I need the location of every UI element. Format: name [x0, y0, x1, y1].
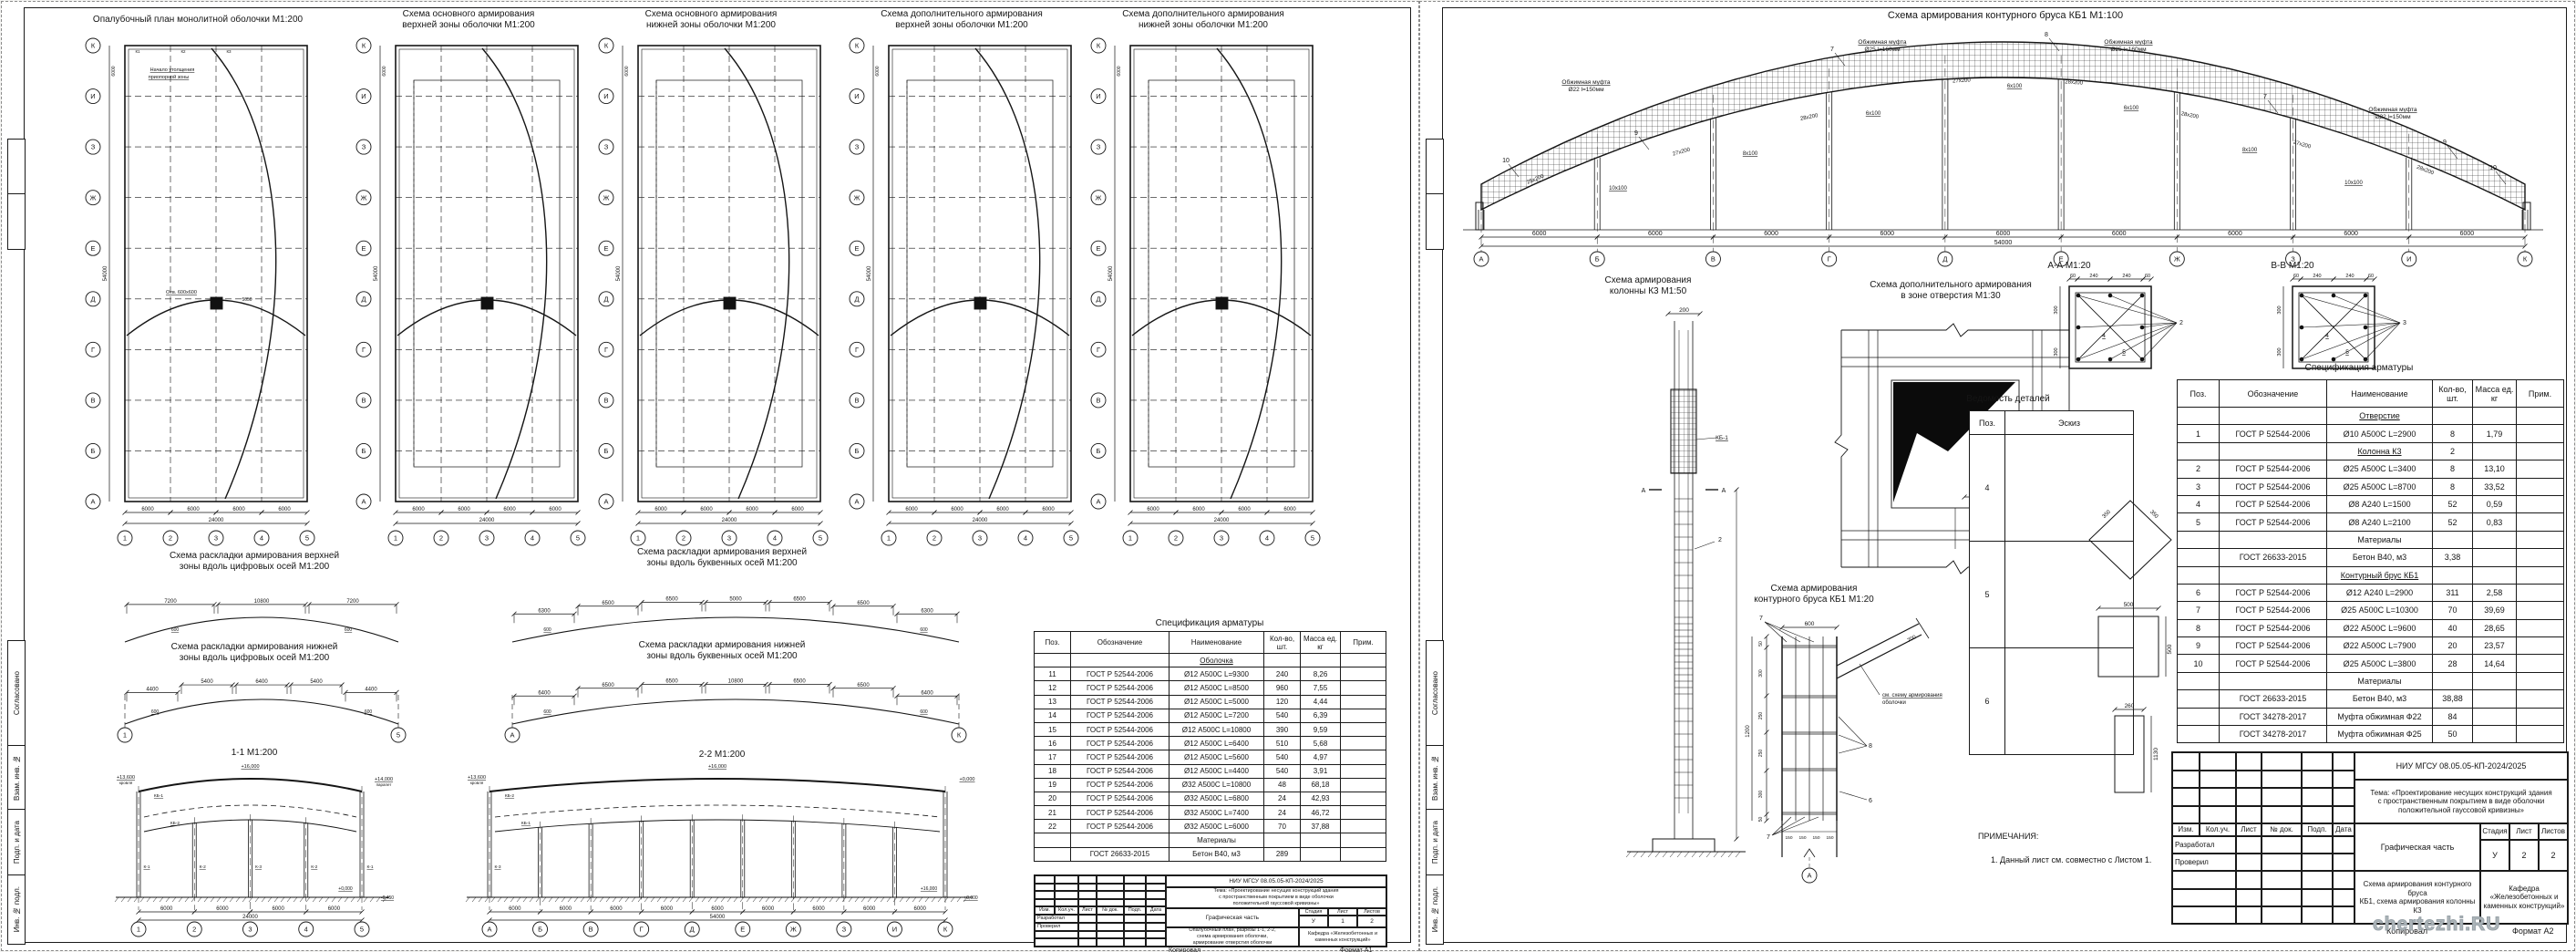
titleblock-cell [2236, 788, 2262, 806]
titleblock-cell [2333, 806, 2354, 824]
spec-header-row: Поз.ОбозначениеНаименованиеКол-во, шт.Ма… [2178, 380, 2564, 408]
position-callout: 10 [1502, 158, 1510, 164]
dim-label: 24000 [1214, 518, 1230, 523]
mufta-label: Обжимная муфта [1858, 38, 1907, 46]
dim-label: 6000 [1996, 231, 2011, 237]
spec-cell: 23,57 [2473, 637, 2517, 655]
axis-label: 5 [1311, 534, 1314, 543]
titleblock-theme: Тема: «Проектирование несущих конструкци… [1166, 887, 1386, 908]
axis-label: Ж [90, 193, 97, 202]
dim-label: 6500 [665, 679, 678, 685]
axis-label: 4 [260, 534, 263, 543]
spec-cell: 11 [1035, 667, 1071, 681]
axis-label: 5 [397, 731, 400, 740]
axis-label: И [2406, 255, 2411, 264]
titleblock-cell [1146, 923, 1166, 931]
position-callout: 2 [1718, 537, 1722, 543]
titleblock-stage-label: Стадия [2480, 823, 2509, 840]
spec-row: ГОСТ 26633-2015Бетон В40, м33,38 [2178, 549, 2564, 566]
titleblock-cell [1078, 891, 1097, 899]
titleblock-stage-label: Стадия [1299, 908, 1328, 916]
dim-label: 600 [920, 709, 928, 715]
axis-label: Г [91, 346, 95, 354]
spec-cell [2473, 672, 2517, 689]
spec-cell: ГОСТ 26633-2015 [2220, 690, 2327, 708]
dim-label: 6000 [2460, 231, 2475, 237]
spec-cell: 18 [1035, 764, 1071, 778]
axis-label: В [361, 396, 366, 404]
spec-cell [1071, 833, 1170, 847]
spec-cell [2517, 708, 2564, 725]
dim-label: 250 [1758, 712, 1764, 720]
dim-label: 24000 [479, 518, 495, 523]
spec-cell [2517, 408, 2564, 425]
side-stamp-box: Подп. и дата [1426, 809, 1444, 876]
dim-label: 6000 [1147, 507, 1159, 512]
dim-label: 150 [1812, 835, 1819, 841]
dim-label: 54000 [1994, 240, 2013, 246]
axis-label: И [1096, 92, 1100, 100]
titleblock-cell [2262, 788, 2302, 806]
titleblock-dept: Кафедра «Железобетонных и каменных конст… [1299, 927, 1386, 947]
spec-row: Материалы [2178, 672, 2564, 689]
spec-cell: ГОСТ Р 52544-2006 [2220, 425, 2327, 442]
titleblock-sheets: 2 [2539, 840, 2568, 871]
axis-label: Б [855, 447, 860, 455]
axis-label: Е [90, 244, 95, 253]
side-stamp-label: Подп. и дата [13, 821, 21, 864]
spec-cell [2473, 531, 2517, 548]
spec-cell [1341, 778, 1386, 792]
dim-label: 6300 [538, 608, 551, 614]
dim-label: 6500 [793, 597, 806, 603]
dim-label: 5400 [310, 679, 323, 685]
dim-label: 54000 [1108, 265, 1114, 281]
titleblock-cell [1097, 884, 1124, 892]
titleblock-cell [2333, 788, 2354, 806]
spec-table: Поз.ОбозначениеНаименованиеКол-во, шт.Ма… [2177, 379, 2564, 743]
dim-label: 6000 [1283, 507, 1296, 512]
axis-label: Ж [790, 926, 797, 934]
spec-cell: ГОСТ Р 52544-2006 [1071, 681, 1170, 695]
titleblock-col-label: Кол.уч. [1055, 906, 1078, 915]
dim-label: 6000 [141, 507, 154, 512]
plan-drawing: Отв. 600х6005050Начало утолщенияприопорн… [75, 35, 321, 559]
spec-cell [2178, 408, 2220, 425]
spec-header-cell: Прим. [2517, 380, 2564, 408]
spec-cell: ГОСТ Р 52544-2006 [1071, 806, 1170, 820]
axis-label: Д [1942, 255, 1947, 264]
spec-cell: 540 [1264, 764, 1301, 778]
dim-label: 6500 [793, 679, 806, 685]
member-tag: К-3 [494, 864, 500, 870]
spec-cell: 2,58 [2473, 584, 2517, 601]
spec-cell [1035, 654, 1071, 667]
dim-label: 5000 [729, 597, 742, 603]
spec-cell [2473, 708, 2517, 725]
spec-cell [2517, 566, 2564, 584]
dim-label: 600 [365, 709, 373, 715]
side-stamp-label: Взам. инв. № [13, 755, 21, 801]
column-tag: К1 [135, 49, 140, 54]
axis-label: Б [1595, 255, 1600, 264]
titleblock-cell [1035, 899, 1055, 907]
axis-label: Г [1097, 346, 1100, 354]
spec-table: Поз.ОбозначениеНаименованиеКол-во, шт.Ма… [1034, 631, 1386, 862]
titleblock-doc: Графическая часть [1166, 908, 1299, 927]
titleblock-cell [1124, 899, 1146, 907]
axis-label: 5 [576, 534, 580, 543]
spec-cell: Ø12 А500С L=7200 [1170, 709, 1264, 722]
side-stamp-label: Инв. № подл. [1431, 886, 1439, 932]
titleblock-cell [2302, 906, 2333, 924]
spec-cell: Ø8 А240 L=1500 [2327, 495, 2433, 512]
spec-cell [2473, 408, 2517, 425]
spacing-label: 28x200 [1800, 113, 1819, 122]
details-header-cell: Поз. [1970, 411, 2005, 435]
axis-label: Г [604, 346, 608, 354]
position-callout: 3 [2403, 320, 2406, 326]
dim-label: 7200 [164, 599, 177, 605]
axis-label: Д [90, 295, 95, 303]
spec-cell: 0,83 [2473, 513, 2517, 531]
details-sketch: 350350 [2005, 435, 2134, 542]
titleblock-cell [1055, 884, 1078, 892]
axis-label: З [604, 143, 609, 151]
titleblock-cell [2236, 771, 2262, 789]
dim-label: 6000 [272, 906, 284, 912]
axis-label: Д [854, 295, 859, 303]
spec-cell: Бетон В40, м3 [2327, 549, 2433, 566]
spec-cell: Ø25 А500С L=3400 [2327, 460, 2433, 478]
spec-cell: 68,18 [1301, 778, 1341, 792]
titleblock-col-label: Кол.уч. [2200, 823, 2236, 836]
section-a-drawing: 2452402406060300300 [2046, 272, 2188, 377]
titleblock-cell [1124, 938, 1146, 947]
axis-label: 4 [1024, 534, 1027, 543]
spec-cell: 240 [1264, 667, 1301, 681]
axis-label: И [603, 92, 608, 100]
titleblock-cell [1055, 891, 1078, 899]
spec-cell: ГОСТ 26633-2015 [1071, 847, 1170, 861]
spec-cell: 22 [1035, 820, 1071, 833]
axis-label: Г [855, 346, 859, 354]
titleblock-cell [2302, 854, 2333, 871]
axis-label: 3 [727, 534, 731, 543]
spec-cell: ГОСТ Р 52544-2006 [1071, 667, 1170, 681]
mufta-label: Обжимная муфта [1561, 78, 1611, 86]
spec-row: ГОСТ 34278-2017Муфта обжимная Ф2284 [2178, 708, 2564, 725]
mufta-label: Ø25 l=160мм [1864, 47, 1901, 53]
dim-label: 10800 [254, 599, 270, 605]
spec-cell [2517, 425, 2564, 442]
titleblock-cell [1097, 923, 1124, 931]
spec-cell: Отверстие [2327, 408, 2433, 425]
dim-label: 54000 [616, 265, 622, 281]
plan-title: Схема основного армирования верхней зоны… [350, 9, 587, 30]
dim-label: 6000 [711, 906, 724, 912]
plan-title: Схема дополнительного армирования нижней… [1085, 9, 1322, 30]
member-tag: КБ-1 [1716, 435, 1728, 441]
titleblock-cell [1097, 899, 1124, 907]
spec-cell: 8,26 [1301, 667, 1341, 681]
details-header-cell: Эскиз [2005, 411, 2134, 435]
spec-cell [1341, 820, 1386, 833]
spec-row: ГОСТ 26633-2015Бетон В40, м3289 [1035, 847, 1386, 861]
dim-label: 260 [2125, 703, 2134, 709]
spec-row: Колонна К32 [2178, 442, 2564, 460]
section-label: 2-2 М1:200 [622, 750, 822, 761]
opening-label: Отв. 600х600 [166, 290, 197, 295]
titleblock-cell [1146, 891, 1166, 899]
dim-label: 700 [1907, 635, 1918, 644]
spec-cell: Ø25 А500С L=8700 [2327, 478, 2433, 495]
dim-label: 10800 [728, 679, 744, 685]
section-a-title: А-А М1:20 [1996, 261, 2142, 272]
titleblock-col-label: Дата [2333, 823, 2354, 836]
axis-label: Ж [854, 193, 860, 202]
titleblock-cell [1078, 931, 1097, 939]
spec-cell [2433, 531, 2473, 548]
spec-cell: 40 [2433, 619, 2473, 636]
dim-label: 6500 [665, 597, 678, 603]
titleblock-col-label: № док. [1097, 906, 1124, 915]
plan-drawing: КИЗЖЕДГВБА123456000600060006000240005400… [345, 35, 592, 559]
titleblock-sig-label: Проверил [2172, 854, 2236, 871]
titleblock-cell [2302, 836, 2333, 854]
elevation-mark: +0,000 [960, 777, 975, 782]
axis-label: Ж [361, 193, 367, 202]
axis-label: К [1097, 42, 1101, 50]
spec-cell: ГОСТ Р 52544-2006 [2220, 478, 2327, 495]
spec-cell: Материалы [2327, 531, 2433, 548]
titleblock-sig-label [2172, 871, 2236, 888]
titleblock-sheet-label: Лист [1328, 908, 1357, 916]
titleblock-cell [1097, 891, 1124, 899]
details-pos: 6 [1970, 648, 2005, 755]
member-tag: К-2 [200, 864, 206, 870]
axis-label: 3 [248, 926, 252, 934]
axis-label: А [361, 498, 366, 506]
axis-label: З [1097, 143, 1101, 151]
spec-cell: Бетон В40, м3 [1170, 847, 1264, 861]
axis-label: Е [740, 926, 745, 934]
titleblock-cell [2236, 889, 2262, 906]
spec-cell: 390 [1264, 722, 1301, 736]
position-callout: 2 [2179, 320, 2183, 326]
titleblock-stage: У [2480, 840, 2509, 871]
titleblock-cell [2333, 836, 2354, 854]
spec-cell: 8 [2433, 460, 2473, 478]
position-callout: 6 [1869, 798, 1872, 804]
titleblock-col-label: Изм. [1035, 906, 1055, 915]
dim-label: 240 [2089, 274, 2097, 279]
spec-cell: Ø12 А500С L=6400 [1170, 737, 1264, 750]
axis-label: В [1096, 396, 1100, 404]
elevation-mark: +0,000 [338, 886, 353, 892]
titleblock-cell [1124, 891, 1146, 899]
titleblock-cell [2236, 752, 2262, 771]
spec-cell: 52 [2433, 495, 2473, 512]
spacing-label: 8x100 [1743, 151, 1758, 157]
dim-label: 150 [1785, 835, 1792, 841]
details-pos: 4 [1970, 435, 2005, 542]
titleblock-cell [1146, 915, 1166, 923]
titleblock-cell [1055, 899, 1078, 907]
spec-cell: 15 [1035, 722, 1071, 736]
spec-cell: 46,72 [1301, 806, 1341, 820]
dim-label: 6300 [921, 608, 933, 614]
titleblock-cell [1035, 884, 1055, 892]
spec-cell: Ø12 А500С L=4400 [1170, 764, 1264, 778]
spec-cell: ГОСТ Р 52544-2006 [2220, 584, 2327, 601]
spec-cell [1035, 847, 1071, 861]
spec-cell: ГОСТ Р 52544-2006 [2220, 655, 2327, 672]
axis-label: Б [1097, 447, 1101, 455]
titleblock: Изм.Кол.уч.Лист№ док.Подп.ДатаРазработал… [2171, 751, 2569, 925]
spec-cell: 120 [1264, 695, 1301, 709]
spec-title: Спецификация арматуры [1091, 618, 1328, 629]
spacing-label: 27x200 [1672, 147, 1691, 157]
dim-label: 60 [2293, 274, 2299, 279]
spec-cell: 13 [1035, 695, 1071, 709]
titleblock-doc: Графическая часть [2354, 823, 2480, 871]
titleblock-cell [1146, 875, 1166, 884]
axis-label: 3 [1220, 534, 1223, 543]
spec-cell: ГОСТ Р 52544-2006 [1071, 750, 1170, 764]
spec-row: 4ГОСТ Р 52544-2006Ø8 А240 L=1500520,59 [2178, 495, 2564, 512]
position-callout: 4 [2102, 333, 2106, 339]
plan-title: Схема дополнительного армирования верхне… [843, 9, 1080, 30]
spec-cell [2517, 655, 2564, 672]
side-stamp-box: Взам. инв. № [7, 745, 26, 811]
mufta-label: Обжимная муфта [2368, 106, 2417, 113]
leader-note: оболочки [1882, 700, 1906, 706]
member-tag: КБ-2 [505, 793, 515, 799]
axis-label: Д [603, 295, 608, 303]
plan-title: Опалубочный план монолитной оболочки М1:… [79, 15, 316, 26]
dim-label: 6000 [1880, 231, 1894, 237]
dim-label: 600 [1805, 621, 1815, 627]
spec-cell: 39,69 [2473, 602, 2517, 619]
dim-label: 6400 [538, 690, 551, 696]
spec-cell: 52 [2433, 513, 2473, 531]
position-callout: 8 [1869, 743, 1872, 750]
axis-label: 2 [192, 926, 196, 934]
elevation-sub: парапет [376, 782, 392, 787]
spec-cell: Ø32 А500С L=6800 [1170, 792, 1264, 805]
titleblock-cell [2262, 854, 2302, 871]
dim-label: 600 [171, 627, 180, 633]
titleblock-cell [2172, 752, 2200, 771]
dim-label: 6000 [216, 906, 229, 912]
axis-label: Е [854, 244, 859, 253]
spec-cell: Колонна К3 [2327, 442, 2433, 460]
spec-cell: 8 [2433, 425, 2473, 442]
spec-header-cell: Наименование [1170, 632, 1264, 654]
spec-cell [2517, 513, 2564, 531]
titleblock-sig-label: Проверил [1035, 923, 1078, 931]
dim-label: 6400 [255, 679, 268, 685]
spec-cell [2220, 566, 2327, 584]
axis-label: В [854, 396, 859, 404]
titleblock-cell [2262, 871, 2302, 888]
dim-label: 6000 [382, 66, 387, 76]
spacing-label: 10x100 [1609, 186, 1627, 191]
dim-label: 6500 [602, 601, 614, 606]
spec-cell [2517, 584, 2564, 601]
spec-cell [2220, 672, 2327, 689]
side-stamp-box: Согласовано [7, 640, 26, 747]
spec-cell: Ø12 А500С L=10800 [1170, 722, 1264, 736]
axis-label: И [90, 92, 95, 100]
spec-row: 19ГОСТ Р 52544-2006Ø32 А500С L=108004868… [1035, 778, 1386, 792]
plan-drawing: КИЗЖЕДГВБА123456000600060006000240005400… [839, 35, 1085, 559]
dim-label: 6500 [602, 683, 614, 688]
notes-title: ПРИМЕЧАНИЯ: [1978, 832, 2038, 841]
spec-cell: Муфта обжимная Ф22 [2327, 708, 2433, 725]
spec-row: ГОСТ 34278-2017Муфта обжимная Ф2550 [2178, 726, 2564, 743]
elevation-mark: -0,450 [381, 895, 394, 901]
dim-label: 24000 [722, 518, 737, 523]
spec-cell [1341, 750, 1386, 764]
titleblock-cell [2333, 889, 2354, 906]
spec-cell: ГОСТ Р 52544-2006 [2220, 460, 2327, 478]
titleblock-cell [1124, 923, 1146, 931]
titleblock-code: НИУ МГСУ 08.05.05-КП-2024/2025 [2354, 752, 2568, 780]
spec-cell [1341, 792, 1386, 805]
spec-cell: 17 [1035, 750, 1071, 764]
side-stamp-box: Инв. № подл. [7, 874, 26, 945]
spec-cell: 20 [2433, 637, 2473, 655]
axis-label: 1 [1128, 534, 1132, 543]
titleblock-sig-label: Разработал [2172, 836, 2236, 854]
titleblock-sheets: 2 [1357, 916, 1386, 927]
elevation-mark: +16,000 [708, 764, 726, 770]
dim-label: 6000 [2112, 231, 2127, 237]
spec-cell [2517, 442, 2564, 460]
mufta-label: Ø22 l=150мм [2375, 114, 2411, 120]
axis-label: 4 [1265, 534, 1269, 543]
spec-cell [1264, 833, 1301, 847]
section-2-2-drawing: А6000Б6000В6000Г6000Д6000Е6000Ж6000З6000… [453, 761, 986, 943]
titleblock-sig-label [2172, 889, 2236, 906]
spec-header-cell: Масса ед. кг [2473, 380, 2517, 408]
titleblock-cell [1078, 884, 1097, 892]
spec-cell [2433, 566, 2473, 584]
spec-cell [2178, 442, 2220, 460]
dim-label: 6000 [654, 507, 667, 512]
spec-cell: 42,93 [1301, 792, 1341, 805]
axis-label: К [957, 731, 962, 740]
dim-label: 240 [2345, 274, 2354, 279]
titleblock-cell [2302, 771, 2333, 789]
spec-row: Материалы [1035, 833, 1386, 847]
spec-cell: Ø22 А500С L=7900 [2327, 637, 2433, 655]
spec-cell [2473, 566, 2517, 584]
spec-cell [2517, 690, 2564, 708]
axis-label: Е [603, 244, 608, 253]
axis-label: Е [1096, 244, 1100, 253]
spec-row: 20ГОСТ Р 52544-2006Ø32 А500С L=68002442,… [1035, 792, 1386, 805]
axis-label: 2 [169, 534, 172, 543]
plan-title: Схема основного армирования нижней зоны … [592, 9, 829, 30]
axis-label: 2 [439, 534, 443, 543]
dim-label: 60 [2368, 274, 2374, 279]
spec-cell: 21 [1035, 806, 1071, 820]
elevation-mark: +16,000 [241, 764, 259, 770]
side-stamp-box [7, 193, 26, 250]
